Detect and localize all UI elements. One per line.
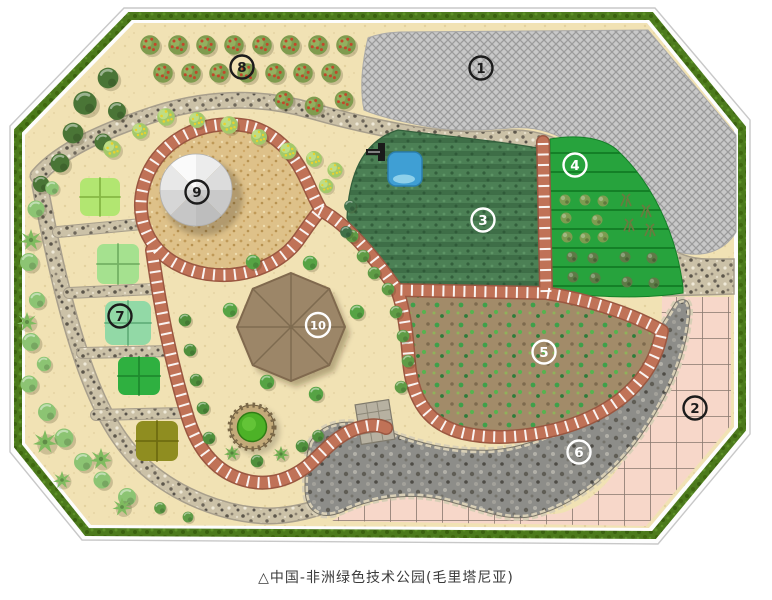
- svg-text:6: 6: [574, 445, 583, 461]
- plot: [97, 244, 139, 284]
- plot: [80, 178, 120, 216]
- caption: △中国-非洲绿色技术公园(毛里塔尼亚): [0, 567, 772, 587]
- svg-text:10: 10: [310, 319, 326, 333]
- svg-text:2: 2: [690, 401, 699, 417]
- svg-text:3: 3: [478, 213, 487, 229]
- svg-text:7: 7: [115, 309, 124, 325]
- svg-text:5: 5: [539, 345, 548, 361]
- plot: [118, 357, 160, 395]
- svg-text:1: 1: [476, 61, 485, 77]
- site-plan-drawing: 1 2 3 4 5 6 7 8 9 10: [0, 0, 772, 560]
- svg-text:8: 8: [237, 60, 246, 76]
- site-plan-page: 1 2 3 4 5 6 7 8 9 10 △中国-非洲绿色技术公园(毛里塔尼亚): [0, 0, 772, 600]
- svg-text:4: 4: [570, 158, 579, 174]
- svg-text:9: 9: [192, 185, 201, 201]
- plot: [136, 421, 178, 461]
